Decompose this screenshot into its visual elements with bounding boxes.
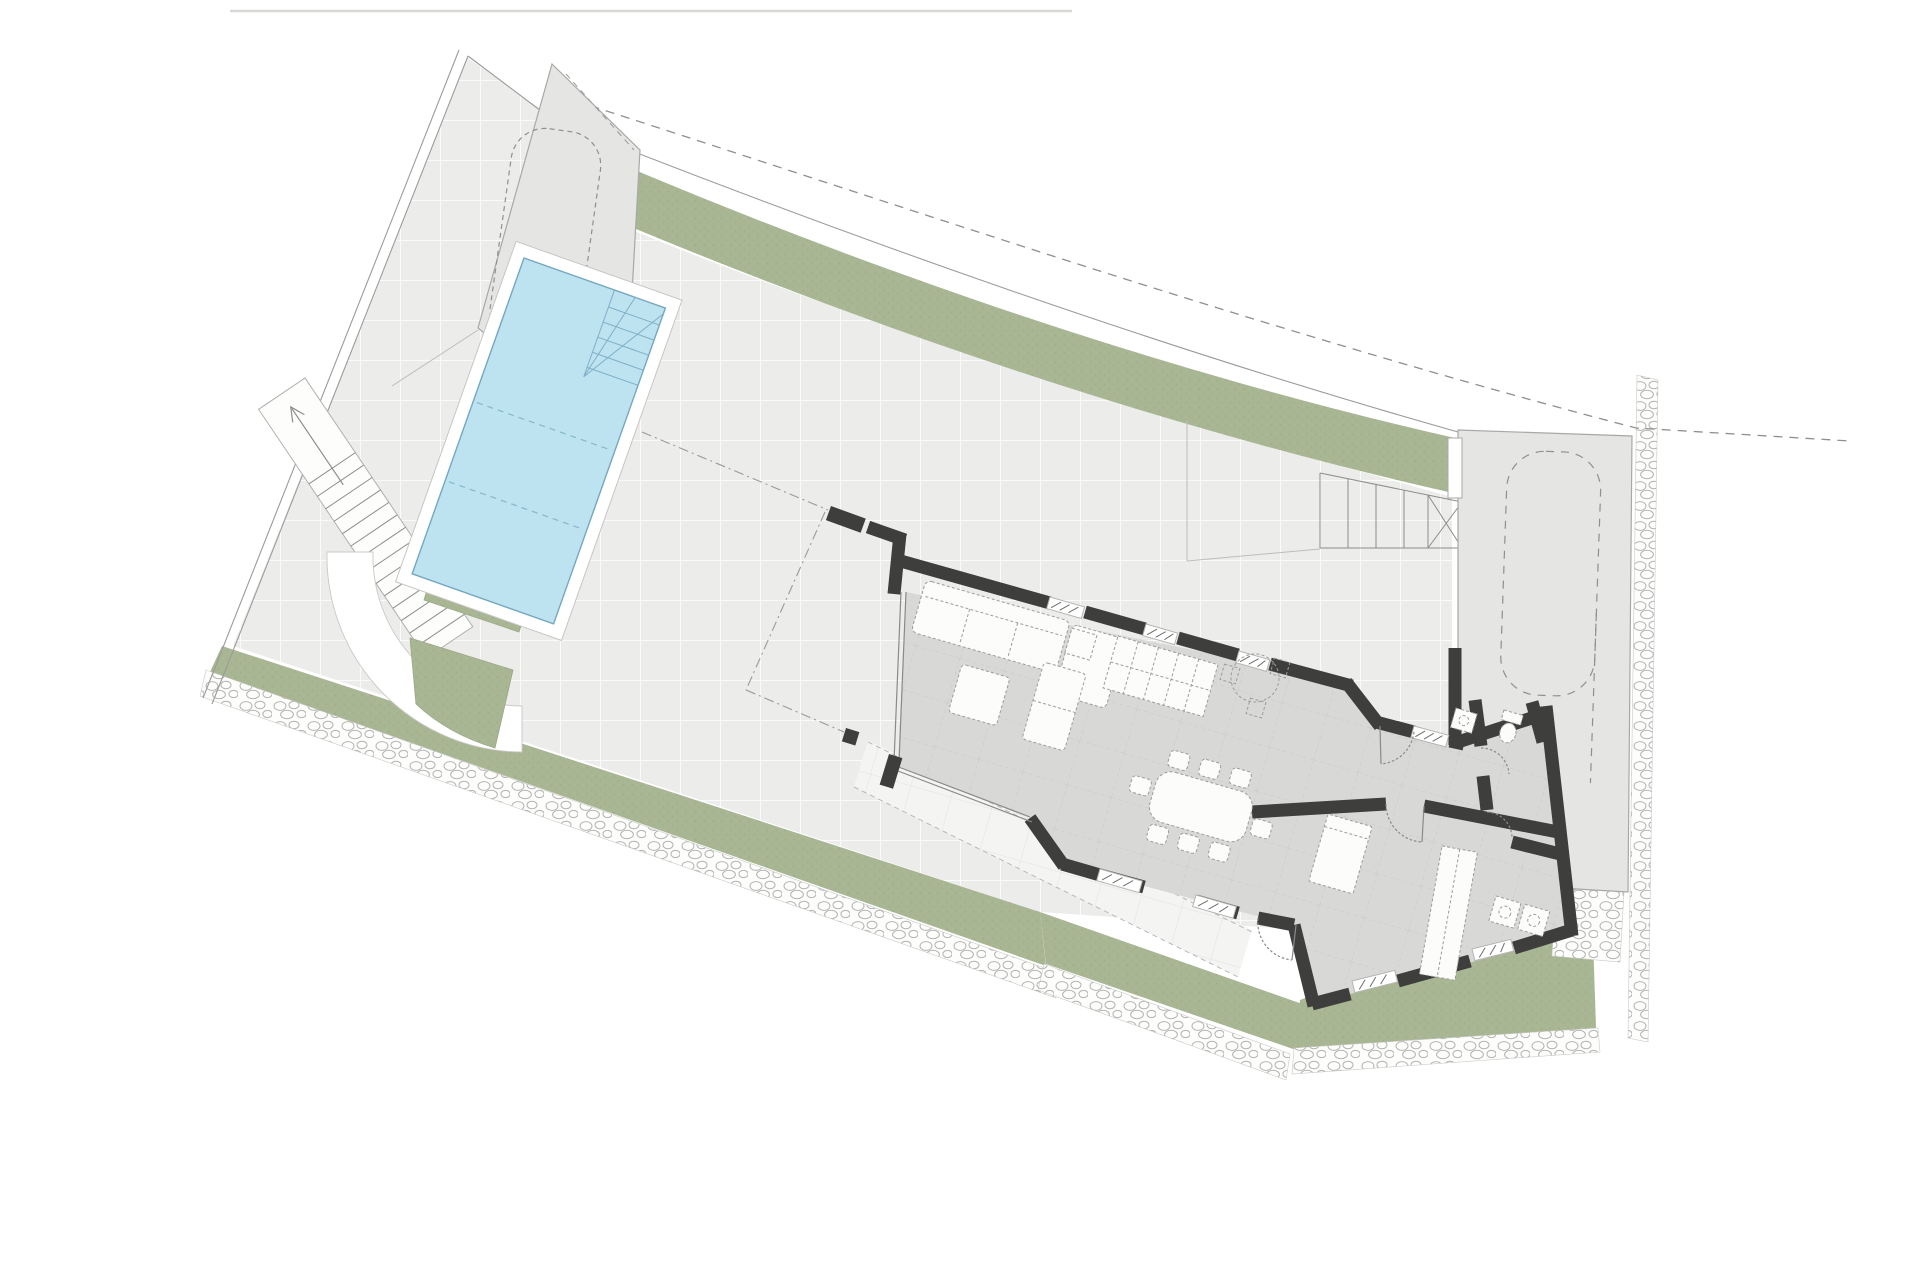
floor-plan-page [0,0,1920,1280]
gravel-strip-right [1628,375,1658,1042]
floor-plan-canvas [0,0,1920,1280]
fence-notch [1448,438,1462,498]
